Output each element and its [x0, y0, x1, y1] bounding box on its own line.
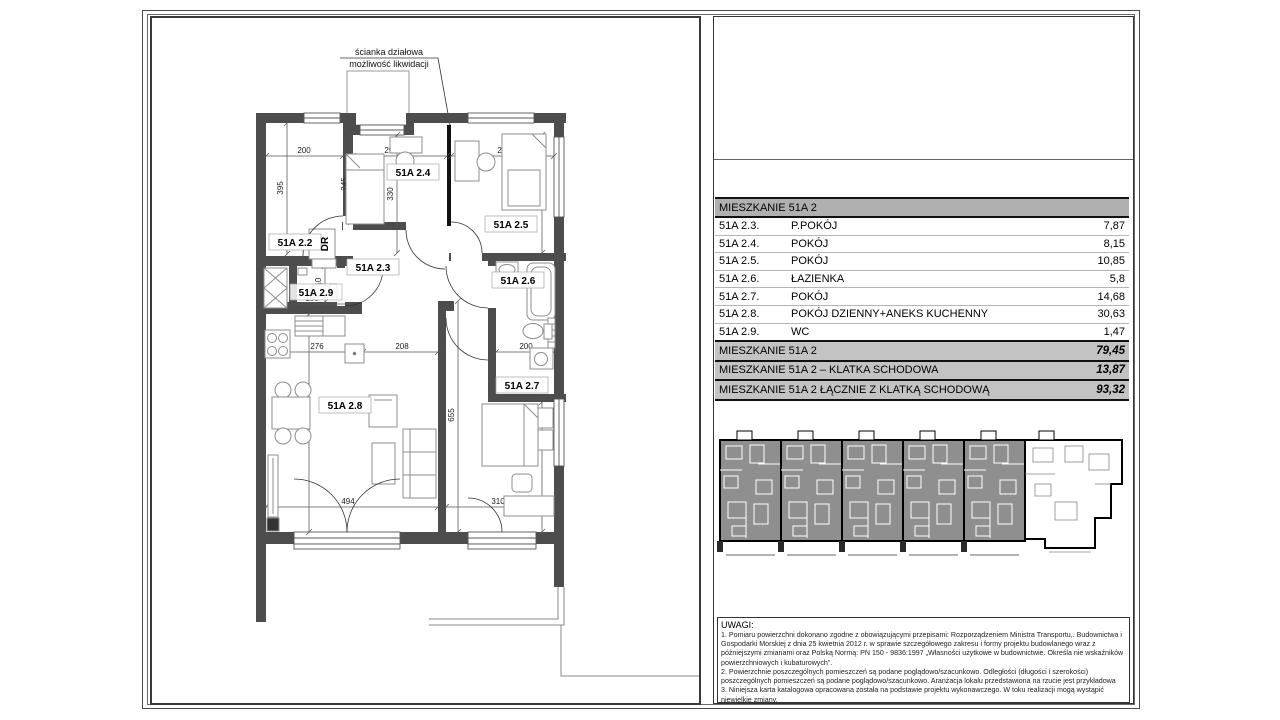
room-label-51a-2-4: 51A 2.4	[396, 168, 431, 179]
summary-label: MIESZKANIE 51A 2	[715, 345, 1069, 357]
room-code: 51A 2.3.	[715, 220, 791, 232]
summary-label: MIESZKANIE 51A 2 – KLATKA SCHODOWA	[715, 364, 1069, 376]
room-label-51a-2-6: 51A 2.6	[501, 276, 536, 287]
floor-plan-drawing: ścianka działowa możliwość likwidacji	[152, 18, 699, 703]
table-header-label: MIESZKANIE 51A 2	[719, 202, 817, 214]
dim-208: 208	[395, 342, 409, 351]
room-code: 51A 2.8.	[715, 308, 791, 320]
partition-note-line1: ścianka działowa	[355, 47, 423, 57]
room-name: WC	[791, 326, 1069, 338]
title-block-divider	[714, 159, 1133, 160]
room-name: POKÓJ	[791, 291, 1069, 303]
room-code: 51A 2.5.	[715, 255, 791, 267]
room-label-dr: DR	[320, 236, 331, 251]
dim-655: 655	[447, 408, 456, 422]
building-overview-minimap	[714, 426, 1131, 571]
room-name: P.POKÓJ	[791, 220, 1069, 232]
table-row: 51A 2.5. POKÓJ 10,85	[715, 253, 1129, 271]
room-label-51a-2-2: 51A 2.2	[278, 238, 313, 249]
summary-row-staircase: MIESZKANIE 51A 2 – KLATKA SCHODOWA 13,87	[715, 362, 1129, 382]
removable-partition-wall	[447, 125, 451, 226]
table-row: 51A 2.7. POKÓJ 14,68	[715, 288, 1129, 306]
summary-value: 93,32	[1069, 384, 1129, 396]
room-area: 1,47	[1069, 326, 1129, 338]
summary-label: MIESZKANIE 51A 2 ŁĄCZNIE Z KLATKĄ SCHODO…	[715, 384, 1069, 396]
room-label-51a-2-8: 51A 2.8	[328, 401, 363, 412]
dim-330: 330	[386, 187, 395, 201]
summary-value: 79,45	[1069, 345, 1129, 357]
dim-395: 395	[276, 181, 285, 195]
room-label-51a-2-5: 51A 2.5	[494, 220, 529, 231]
table-row: 51A 2.3. P.POKÓJ 7,87	[715, 218, 1129, 236]
room-label-51a-2-7: 51A 2.7	[505, 381, 540, 392]
note-item-2: 2. Powierzchnie poszczególnych pomieszcz…	[721, 668, 1126, 686]
page: ścianka działowa możliwość likwidacji	[0, 0, 1280, 720]
dim-276: 276	[310, 342, 324, 351]
room-area: 14,68	[1069, 291, 1129, 303]
table-row: 51A 2.8. POKÓJ DZIENNY+ANEKS KUCHENNY 30…	[715, 306, 1129, 324]
room-area: 5,8	[1069, 273, 1129, 285]
room-area: 30,63	[1069, 308, 1129, 320]
notes-box: UWAGI: 1. Pomiaru powierzchni dokonano z…	[717, 617, 1130, 703]
room-area: 8,15	[1069, 238, 1129, 250]
room-label-51a-2-3: 51A 2.3	[356, 263, 391, 274]
table-row: 51A 2.4. POKÓJ 8,15	[715, 236, 1129, 254]
notes-title: UWAGI:	[721, 620, 1126, 630]
room-code: 51A 2.6.	[715, 273, 791, 285]
terrace-outline	[429, 587, 699, 676]
room-area: 7,87	[1069, 220, 1129, 232]
room-code: 51A 2.9.	[715, 326, 791, 338]
note-item-1: 1. Pomiaru powierzchni dokonano zgodne z…	[721, 631, 1126, 668]
right-panel: MIESZKANIE 51A 2 51A 2.3. P.POKÓJ 7,87 5…	[713, 16, 1134, 704]
partition-note-line2: możliwość likwidacji	[349, 59, 429, 69]
floor-plan-panel: ścianka działowa możliwość likwidacji	[150, 16, 701, 705]
bay-outline	[347, 71, 409, 125]
dim-310: 310	[491, 497, 505, 506]
furniture	[264, 134, 555, 531]
room-area: 10,85	[1069, 255, 1129, 267]
room-code: 51A 2.7.	[715, 291, 791, 303]
dim-200: 200	[297, 146, 311, 155]
minimap-end-unit	[1025, 431, 1122, 552]
room-name: POKÓJ	[791, 238, 1069, 250]
room-label-51a-2-9: 51A 2.9	[299, 288, 334, 299]
summary-value: 13,87	[1069, 364, 1129, 376]
note-item-3: 3. Niniejsza karta katalogowa opracowana…	[721, 686, 1126, 704]
area-table: MIESZKANIE 51A 2 51A 2.3. P.POKÓJ 7,87 5…	[715, 197, 1129, 401]
summary-row-total: MIESZKANIE 51A 2 79,45	[715, 342, 1129, 362]
room-name: POKÓJ DZIENNY+ANEKS KUCHENNY	[791, 308, 1069, 320]
room-code: 51A 2.4.	[715, 238, 791, 250]
summary-row-combined: MIESZKANIE 51A 2 ŁĄCZNIE Z KLATKĄ SCHODO…	[715, 381, 1129, 401]
room-name: POKÓJ	[791, 255, 1069, 267]
table-header-row: MIESZKANIE 51A 2	[715, 197, 1129, 218]
room-name: ŁAZIENKA	[791, 273, 1069, 285]
table-row: 51A 2.9. WC 1,47	[715, 324, 1129, 343]
table-row: 51A 2.6. ŁAZIENKA 5,8	[715, 271, 1129, 289]
dim-494: 494	[341, 497, 355, 506]
